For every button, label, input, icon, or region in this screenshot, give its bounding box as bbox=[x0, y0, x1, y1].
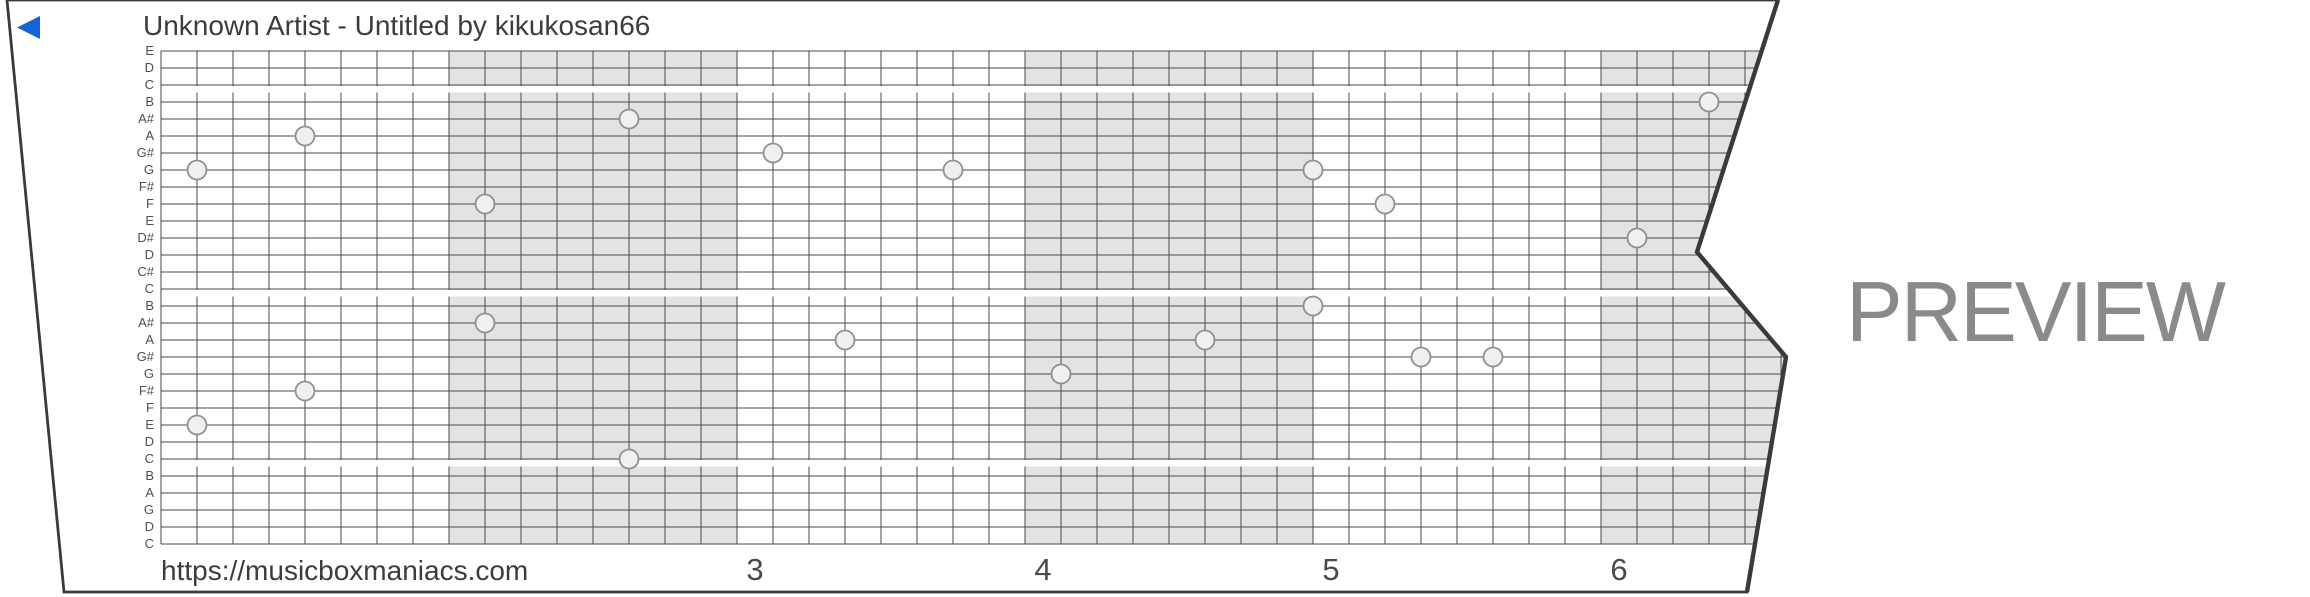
note-label-row-0: E bbox=[100, 44, 154, 58]
note-label-row-13: C# bbox=[100, 265, 154, 279]
note-dot-fs bbox=[296, 382, 315, 401]
note-label-row-29: C bbox=[100, 537, 154, 551]
note-dot-e bbox=[188, 416, 207, 435]
note-dot-f bbox=[476, 195, 495, 214]
measure-number-4: 4 bbox=[1013, 554, 1073, 586]
note-label-row-28: D bbox=[100, 520, 154, 534]
note-label-row-14: C bbox=[100, 282, 154, 296]
note-dot-ds bbox=[1628, 229, 1647, 248]
note-label-row-23: D bbox=[100, 435, 154, 449]
site-url-link[interactable]: https://musicboxmaniacs.com bbox=[161, 555, 528, 587]
octave-separator bbox=[162, 460, 1861, 467]
note-dot-gs bbox=[1484, 348, 1503, 367]
note-label-row-11: D# bbox=[100, 231, 154, 245]
note-label-row-24: C bbox=[100, 452, 154, 466]
note-dot-b bbox=[1304, 297, 1323, 316]
note-dot-gs bbox=[1412, 348, 1431, 367]
note-label-row-12: D bbox=[100, 248, 154, 262]
note-label-row-15: B bbox=[100, 299, 154, 313]
note-dot-a bbox=[296, 127, 315, 146]
note-label-row-25: B bbox=[100, 469, 154, 483]
note-dot-b bbox=[1700, 93, 1719, 112]
page-title: Unknown Artist - Untitled by kikukosan66 bbox=[143, 10, 650, 42]
note-label-row-7: G bbox=[100, 163, 154, 177]
note-dot-g bbox=[188, 161, 207, 180]
note-dot-as bbox=[476, 314, 495, 333]
preview-watermark: PREVIEW bbox=[1846, 264, 2224, 362]
note-label-row-9: F bbox=[100, 197, 154, 211]
note-label-row-20: F# bbox=[100, 384, 154, 398]
note-dot-a bbox=[836, 331, 855, 350]
note-label-row-6: G# bbox=[100, 146, 154, 160]
note-label-row-27: G bbox=[100, 503, 154, 517]
note-label-row-3: B bbox=[100, 95, 154, 109]
note-label-row-21: F bbox=[100, 401, 154, 415]
note-dot-f bbox=[1376, 195, 1395, 214]
note-dot-gs bbox=[764, 144, 783, 163]
note-label-row-22: E bbox=[100, 418, 154, 432]
measure-number-6: 6 bbox=[1589, 554, 1649, 586]
note-label-row-4: A# bbox=[100, 112, 154, 126]
octave-separator bbox=[162, 290, 1861, 297]
note-label-row-2: C bbox=[100, 78, 154, 92]
note-label-row-18: G# bbox=[100, 350, 154, 364]
note-label-row-19: G bbox=[100, 367, 154, 381]
note-label-row-10: E bbox=[100, 214, 154, 228]
note-label-row-1: D bbox=[100, 61, 154, 75]
note-label-row-17: A bbox=[100, 333, 154, 347]
measure-number-3: 3 bbox=[725, 554, 785, 586]
note-dot-c bbox=[620, 450, 639, 469]
note-dot-g bbox=[1052, 365, 1071, 384]
note-label-row-5: A bbox=[100, 129, 154, 143]
note-label-row-16: A# bbox=[100, 316, 154, 330]
note-dot-g bbox=[944, 161, 963, 180]
note-dot-g bbox=[1304, 161, 1323, 180]
note-dot-a bbox=[1196, 331, 1215, 350]
note-dot-as bbox=[620, 110, 639, 129]
note-label-row-26: A bbox=[100, 486, 154, 500]
note-label-row-8: F# bbox=[100, 180, 154, 194]
octave-separator bbox=[162, 86, 1861, 93]
measure-number-5: 5 bbox=[1301, 554, 1361, 586]
music-box-preview: Unknown Artist - Untitled by kikukosan66… bbox=[0, 0, 2310, 597]
